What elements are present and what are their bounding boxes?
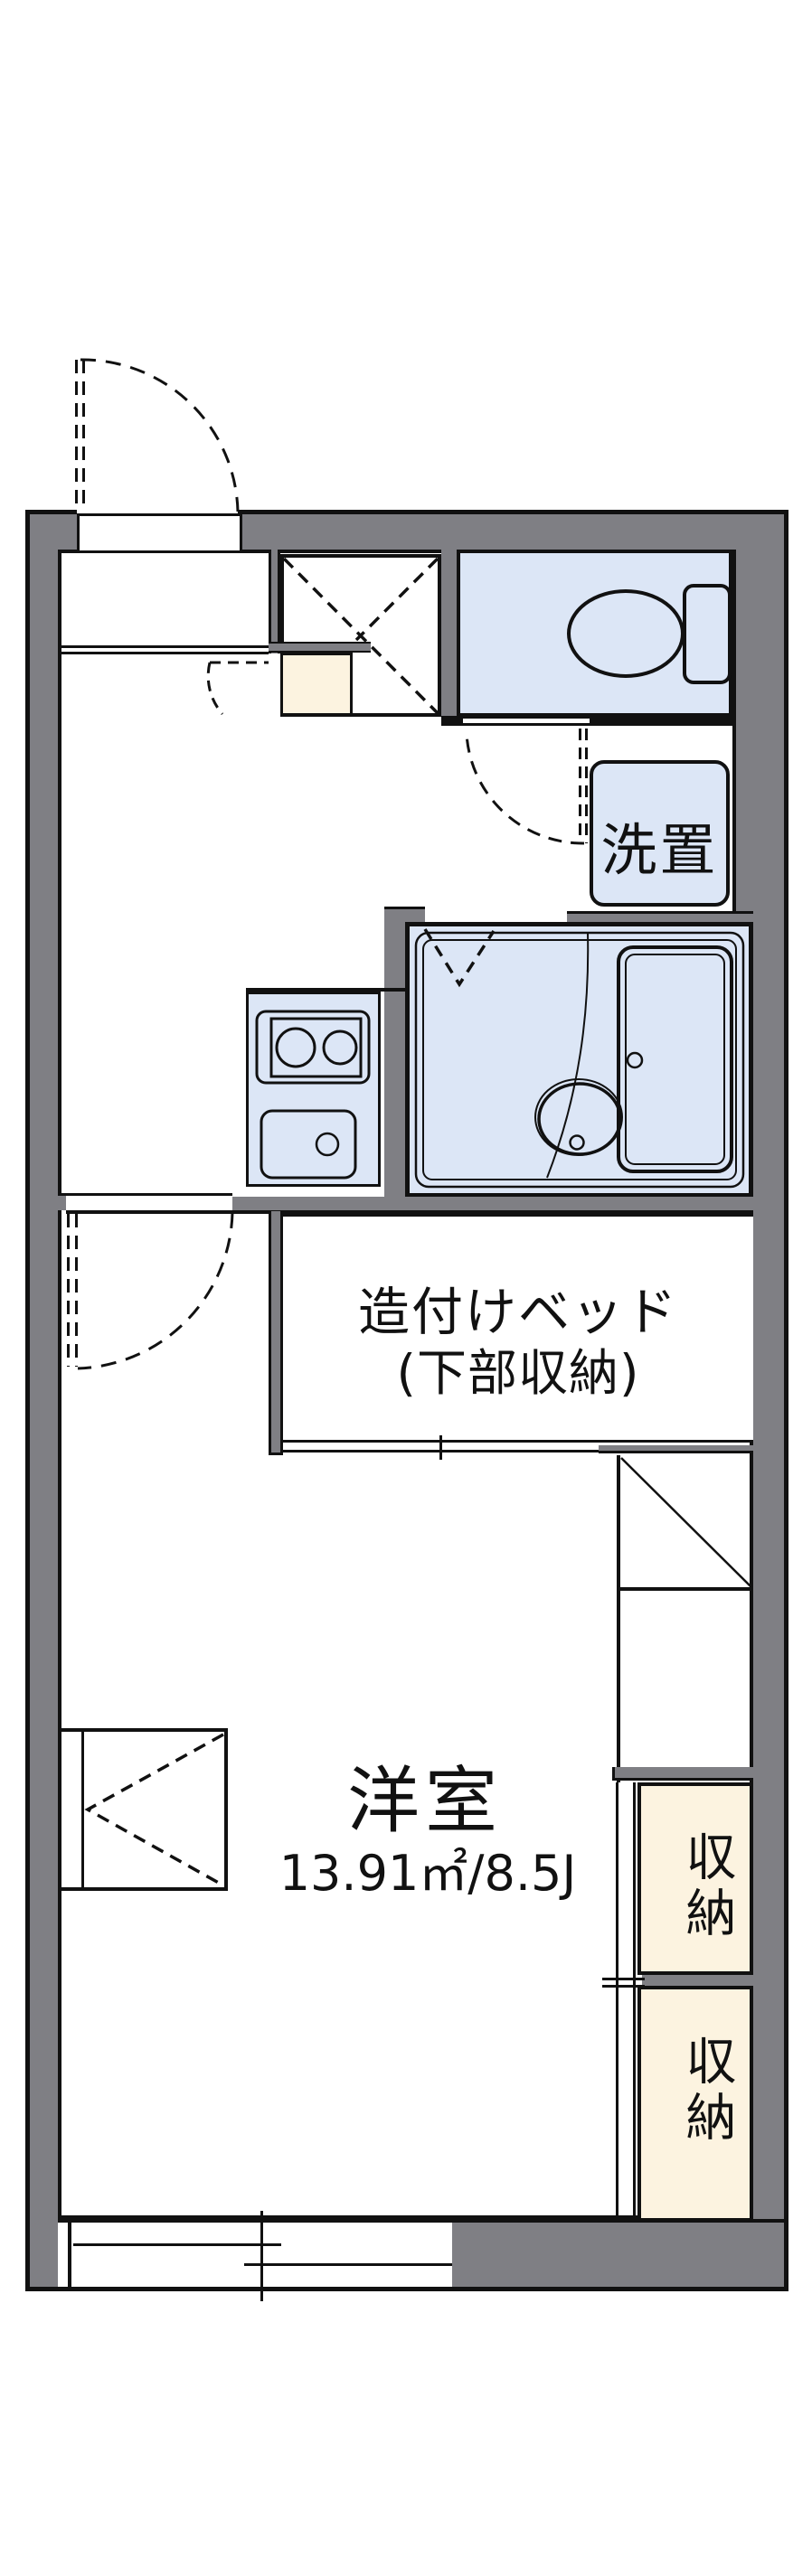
bottom-window-pane-line-right [244, 2263, 452, 2266]
corridor-doorway-header [58, 1193, 232, 1196]
closet-upper-label: 収納 [670, 1819, 743, 1954]
bed-line-tick [439, 1435, 442, 1460]
partition-wash-bath-left [384, 907, 425, 922]
corridor-door-stub [58, 1196, 66, 1210]
bathroom [405, 922, 753, 1198]
bed-label-line2: (下部収納) [292, 1332, 744, 1405]
entrance-door-swing [77, 360, 239, 512]
floorplan-canvas: 洗置 造付けベッド (下部収納) 収納 収納 洋室 13.91㎡/8.5J [0, 0, 812, 2576]
bottom-window [58, 2219, 452, 2287]
kitchen-counter [246, 992, 381, 1187]
toilet-door-opening [463, 719, 590, 723]
bed-divider-wall [269, 1211, 283, 1455]
fridge-column-left-line [617, 1455, 620, 1782]
right-wall-extension [732, 550, 753, 913]
main-room-label: 洋室 [244, 1743, 606, 1847]
entrance-side-wall [269, 550, 280, 653]
bed-front-line-a [283, 1440, 753, 1443]
washing-machine-label: 洗置 [590, 804, 730, 886]
closet-track-tick-lower [602, 1985, 645, 1988]
fridge-space-bottom-line [620, 1587, 753, 1591]
entrance-door-leaf [77, 513, 242, 553]
closet-track-tick-upper [602, 1978, 645, 1980]
entrance-step-line-upper [61, 645, 269, 648]
bottom-window-frame-left [68, 2223, 71, 2287]
entrance-step-line-lower [61, 652, 269, 654]
closet-top-wall-band [612, 1767, 753, 1781]
bed-bottom-wall [599, 1445, 753, 1453]
bottom-window-pane-line-left [73, 2243, 281, 2246]
shoe-cabinet [280, 653, 353, 716]
toilet-left-wall [441, 550, 457, 719]
partition-wash-bath-right [567, 911, 753, 922]
bay-window-inner-line [81, 1732, 84, 1887]
toilet-room [457, 550, 732, 717]
bottom-window-center-tick [260, 2211, 263, 2301]
kitchen-bath-wall [384, 922, 405, 1198]
entry-wall-band [269, 642, 371, 653]
closet-lower-label: 収納 [670, 2023, 743, 2158]
closet-separator [642, 1975, 753, 1986]
main-room-area-label: 13.91㎡/8.5J [202, 1833, 654, 1904]
